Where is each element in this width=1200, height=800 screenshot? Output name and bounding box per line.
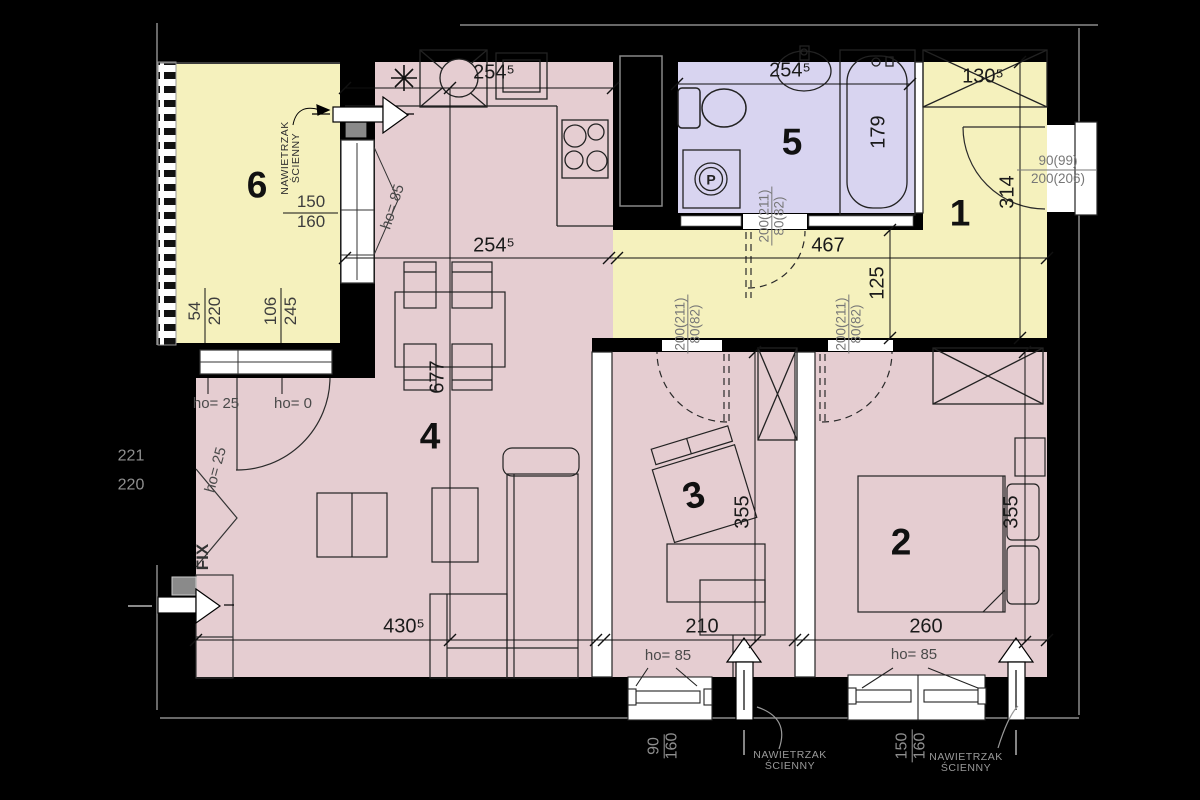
dim-hall-length: 467: [811, 236, 844, 257]
fix-window-label: FIX: [194, 544, 212, 570]
level-mark-1: 221: [118, 449, 145, 466]
window-bedroom: [848, 668, 986, 720]
dim-kitchen-mid: 254⁵: [473, 236, 515, 257]
entry-door-spec: 90(99) 200(206): [1031, 154, 1085, 186]
floor-plan: 6 4 5 1 3 2 254⁵ 254⁵ 254⁵ 130⁵ 179 467 …: [0, 0, 1200, 800]
sill-height-label-bedroom-window: ho= 85: [891, 647, 937, 663]
dim-balcony-window: 150160: [293, 192, 329, 232]
dim-study-width: 210: [685, 617, 718, 638]
dim-hall-width: 125: [868, 266, 889, 299]
wall-vent-label-bottom-left: NAWIETRZAK ŚCIENNY: [753, 750, 826, 772]
bathroom-door-spec: 200(211) 80(82): [757, 186, 786, 245]
washing-machine-letter: P: [706, 173, 715, 188]
sill-height-label-25: ho= 25: [193, 396, 239, 412]
dim-living-width: 430⁵: [383, 617, 425, 638]
room-label-bedroom: 2: [891, 524, 912, 563]
study-door-spec: 200(211) 80(82): [673, 294, 702, 353]
room-label-hall: 1: [950, 195, 971, 234]
sill-height-label-0: ho= 0: [274, 396, 312, 412]
room-label-living: 4: [420, 418, 441, 457]
dim-bathroom-width: 254⁵: [769, 61, 811, 82]
room-label-balcony: 6: [247, 167, 268, 206]
dim-living-length: 677: [428, 360, 449, 393]
wall-vent-label-top: NAWIETRZAK ŚCIENNY: [280, 121, 302, 194]
dim-balcony-pair2: 106245: [261, 293, 301, 329]
dim-entry-depth: 314: [998, 175, 1019, 208]
floorplan-drawing: [0, 0, 1200, 800]
dim-bedroom-width: 260: [909, 617, 942, 638]
level-mark-2: 220: [118, 478, 145, 495]
study-window-size: 90 160: [647, 733, 682, 760]
dim-balcony-pair1: 54220: [185, 293, 225, 329]
dim-study-depth: 355: [733, 495, 754, 528]
sill-height-label-study-window: ho= 85: [645, 648, 691, 664]
dim-closet-width: 130⁵: [962, 67, 1004, 88]
bedroom-door-spec: 200(211) 80(82): [834, 294, 863, 353]
dim-tub: 179: [869, 115, 890, 148]
dim-bedroom-depth: 355: [1002, 495, 1023, 528]
shaft: [620, 56, 662, 206]
wall-vent-label-bottom-right: NAWIETRZAK ŚCIENNY: [929, 752, 1002, 774]
dim-kitchen-top: 254⁵: [473, 63, 515, 84]
room-label-bathroom: 5: [782, 124, 803, 163]
bedroom-window-size: 150 160: [895, 730, 930, 763]
